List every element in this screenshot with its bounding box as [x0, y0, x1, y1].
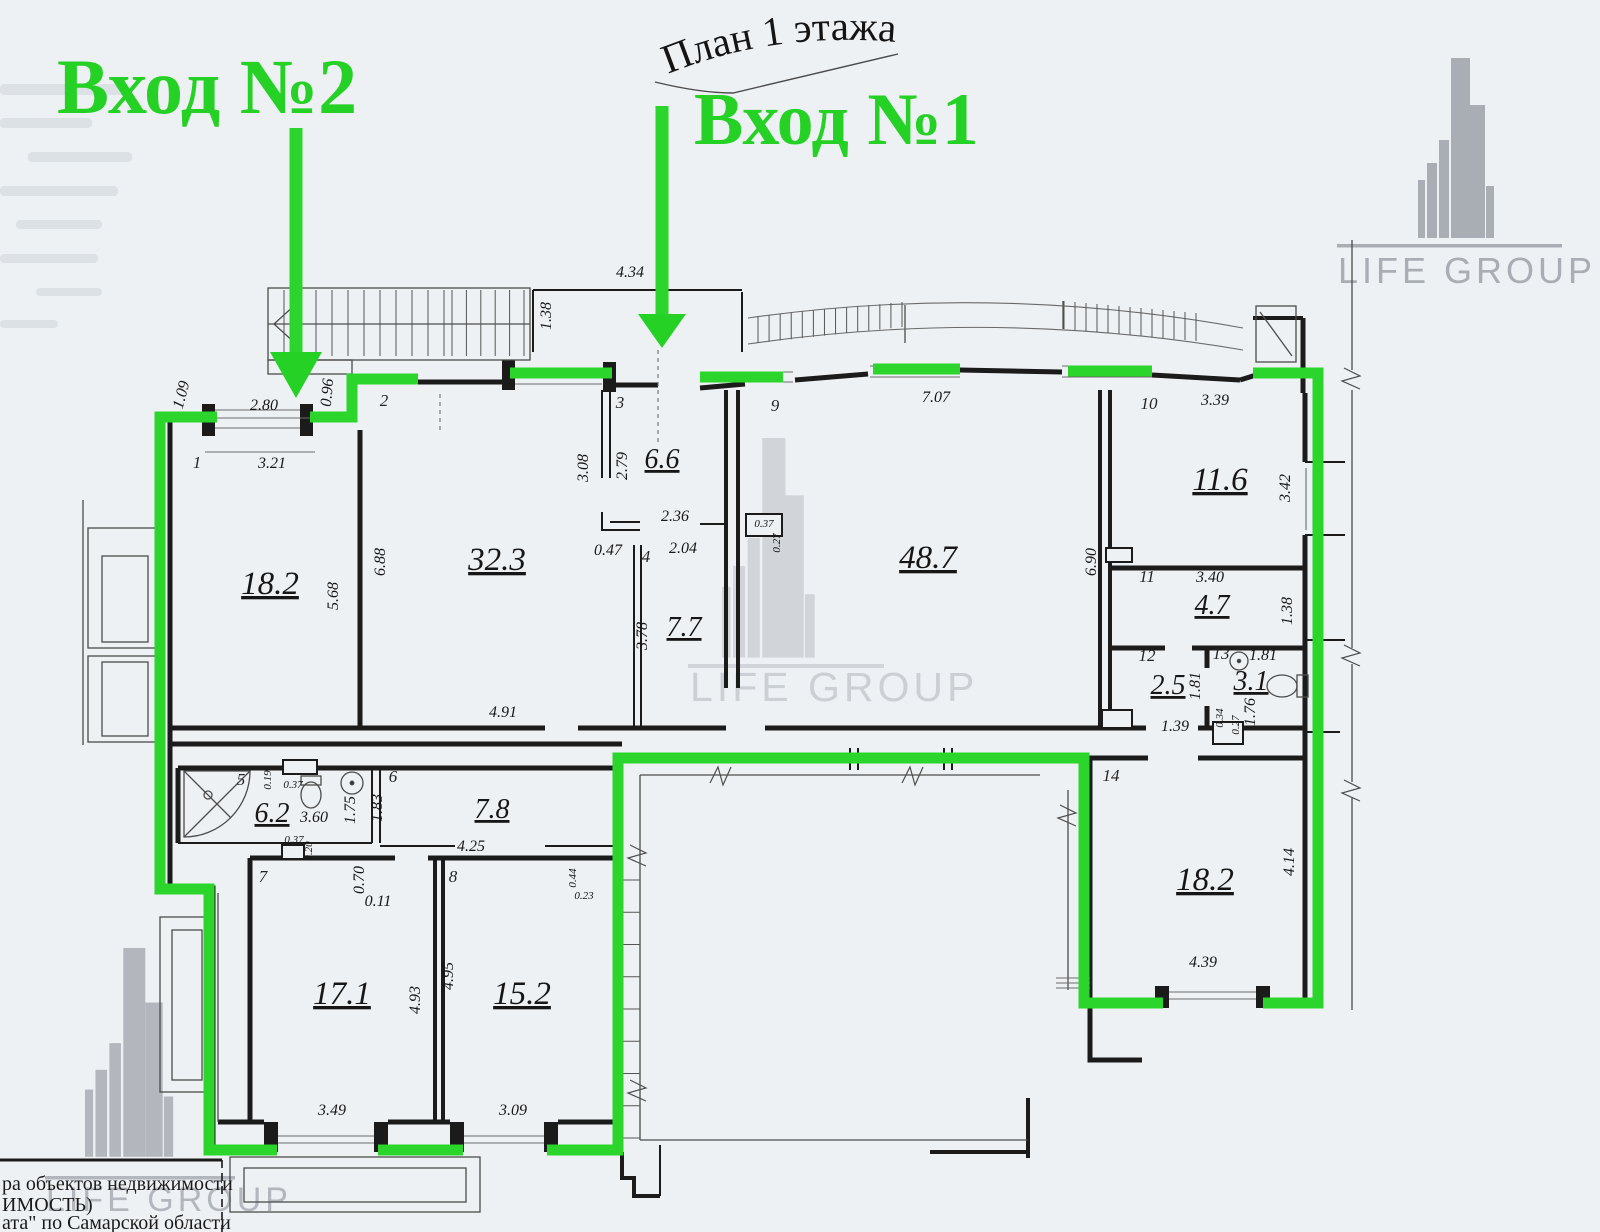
dim-2-04: 2.04: [669, 540, 697, 557]
plan-title: План 1 этажа: [655, 3, 898, 83]
dim-3-42: 3.42: [1277, 474, 1294, 503]
toilet-icon-room13: [1267, 675, 1308, 697]
room-area-14: 18.2: [1176, 862, 1234, 898]
entrance-2-label: Вход №2: [57, 43, 357, 130]
dim-0-96: 0.96: [318, 378, 337, 407]
room-number-9: 9: [771, 396, 780, 415]
room-area-11: 4.7: [1195, 590, 1231, 621]
brand-text-top-right: LIFE GROUP: [1338, 250, 1596, 291]
entrance-1-label: Вход №1: [694, 79, 979, 161]
dim-0-47: 0.47: [594, 542, 623, 559]
dim-1-39: 1.39: [1161, 718, 1189, 735]
room-area-2: 32.3: [467, 542, 526, 578]
dim-0-23: 0.23: [574, 890, 594, 902]
dim-1-81-b: 1.81: [1249, 647, 1277, 664]
dim-4-39: 4.39: [1189, 954, 1217, 971]
entrance-2-arrow: [270, 128, 322, 398]
dim-4-95: 4.95: [440, 962, 457, 990]
room-number-12: 12: [1139, 646, 1157, 665]
dim-0-19: 0.19: [262, 770, 274, 790]
dim-4-93: 4.93: [407, 986, 424, 1014]
dim-2-36: 2.36: [661, 508, 689, 525]
dim-3-60: 3.60: [299, 809, 328, 826]
stamp-line-3: ата" по Самарской области: [2, 1212, 231, 1232]
dim-3-39: 3.39: [1200, 392, 1229, 409]
room-area-8: 15.2: [493, 976, 551, 1012]
room-number-11: 11: [1139, 567, 1155, 586]
life-group-logo-top-right: LIFE GROUP: [1337, 58, 1596, 291]
dim-0-37-b: 0.37: [283, 779, 303, 791]
room-area-12: 2.5: [1151, 670, 1186, 701]
dim-0-70: 0.70: [351, 866, 368, 894]
room-number-6: 6: [389, 767, 398, 786]
dim-0-37-c: 0.37: [284, 834, 304, 846]
room-number-14: 14: [1103, 766, 1121, 785]
dim-1-76: 1.76: [1242, 698, 1259, 726]
dim-4-14: 4.14: [1281, 848, 1298, 876]
dim-2-80: 2.80: [250, 397, 278, 414]
room-number-13: 13: [1213, 644, 1230, 663]
room-area-1: 18.2: [241, 566, 299, 602]
dim-6-90: 6.90: [1083, 548, 1100, 576]
dim-2-79: 2.79: [614, 452, 631, 480]
room-number-1: 1: [193, 453, 202, 472]
dim-1-38-b: 1.38: [1279, 597, 1296, 625]
dim-0-20: 0.20: [303, 841, 315, 861]
dim-3-78: 3.78: [634, 622, 651, 651]
dim-3-21: 3.21: [257, 455, 286, 472]
brand-text-center: LIFE GROUP: [690, 664, 978, 710]
room-number-8: 8: [449, 867, 458, 886]
sink-icon-room5: [341, 772, 363, 794]
dim-0-27-b: 0.27: [1230, 715, 1242, 735]
building-icon: [1418, 58, 1494, 238]
stamp-line-1: ра объектов недвижимости: [2, 1173, 233, 1195]
entrance-1-arrow: [638, 106, 686, 348]
room-number-10: 10: [1141, 394, 1159, 413]
room-area-4: 7.7: [667, 612, 703, 643]
dim-0-37-a: 0.37: [754, 518, 774, 530]
dim-3-49: 3.49: [317, 1102, 346, 1119]
dim-0-44: 0.44: [567, 868, 579, 888]
dim-3-09: 3.09: [498, 1102, 527, 1119]
room-number-2: 2: [380, 391, 389, 410]
room-area-13: 3.1: [1233, 666, 1269, 697]
room-area-10: 11.6: [1192, 462, 1248, 498]
dim-0-34: 0.34: [1214, 708, 1226, 728]
dim-7-07: 7.07: [922, 389, 951, 406]
room-number-4: 4: [642, 547, 651, 566]
dim-5-68: 5.68: [325, 582, 342, 610]
room-number-3: 3: [615, 393, 625, 412]
room-area-6: 7.8: [475, 794, 510, 825]
wall-lines: [170, 290, 1345, 1196]
dim-4-25: 4.25: [457, 838, 485, 855]
dim-3-40: 3.40: [1195, 569, 1224, 586]
dim-0-11: 0.11: [365, 893, 392, 910]
floor-plan: LIFE GROUP LIFE GROUP LIFE GROUP: [0, 0, 1600, 1232]
room-area-9: 48.7: [899, 540, 958, 576]
dim-0-27-a: 0.27: [771, 533, 783, 553]
dim-1-81-a: 1.81: [1187, 672, 1204, 700]
room-area-5: 6.2: [255, 798, 290, 829]
room-area-3: 6.6: [645, 444, 680, 475]
dim-1-83: 1.83: [369, 794, 386, 822]
dim-1-09: 1.09: [170, 379, 194, 410]
dim-4-91: 4.91: [489, 704, 517, 721]
stair-hatch-left: [284, 290, 444, 356]
room-number-5: 5: [237, 770, 246, 789]
toilet-icon-room5: [301, 776, 321, 808]
room-area-7: 17.1: [313, 976, 371, 1012]
dim-6-88: 6.88: [372, 548, 389, 576]
dim-4-34: 4.34: [616, 264, 644, 281]
room-number-7: 7: [259, 867, 269, 886]
dim-1-38-a: 1.38: [538, 302, 555, 330]
dim-3-08: 3.08: [575, 454, 592, 483]
stair-hatch-right: [452, 290, 524, 356]
scanned-floor-plan-page: LIFE GROUP LIFE GROUP LIFE GROUP: [0, 0, 1600, 1232]
dim-1-75: 1.75: [342, 796, 359, 824]
